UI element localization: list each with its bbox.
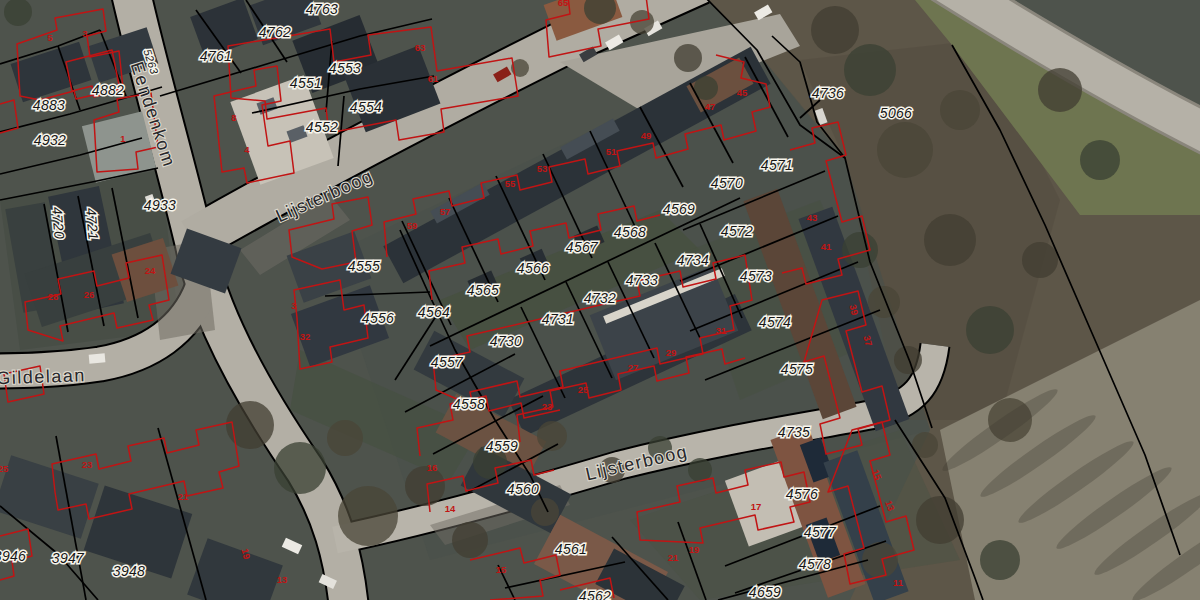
house-number-label: 5 (47, 32, 53, 43)
tree-canopy (1038, 68, 1082, 112)
parcel-number-label: 4736 (812, 85, 844, 101)
house-number-label: 1 (120, 133, 126, 144)
parcel-number-label: 5066 (880, 105, 912, 121)
house-number-label: 61 (428, 73, 439, 84)
tree-canopy (531, 498, 559, 526)
house-number-label: 16 (427, 462, 438, 473)
parcel-number-label: 4720 (49, 206, 68, 240)
tree-canopy (844, 44, 896, 96)
parcel-number-label: 4572 (721, 223, 753, 239)
parcel-number-label: 4733 (626, 272, 658, 288)
parcel-number-label: 4553 (329, 60, 361, 76)
tree-canopy (940, 90, 980, 130)
map-viewport[interactable]: EendenkomLijsterboogLijsterboogGildelaan… (0, 0, 1200, 600)
house-number-label: 43 (807, 212, 818, 223)
house-number-label: 55 (505, 178, 516, 189)
house-number-label: 51 (606, 146, 617, 157)
tree-canopy (842, 232, 878, 268)
street-name-label: Gildelaan (0, 365, 86, 388)
tree-canopy (966, 306, 1014, 354)
parcel-number-label: 3946 (0, 548, 26, 564)
house-number-label: 27 (628, 362, 639, 373)
tree-canopy (980, 540, 1020, 580)
house-number-label: 4 (244, 144, 250, 155)
house-number-label: 13 (277, 574, 288, 585)
house-number-label: 3 (82, 28, 87, 39)
house-number-label: 29 (666, 347, 677, 358)
parcel-number-label: 4578 (799, 556, 831, 572)
tree-canopy (338, 486, 398, 546)
house-number-label: 57 (440, 206, 451, 217)
parcel-number-label: 4559 (486, 438, 518, 454)
house-number-label: 11 (893, 577, 904, 588)
parcel-number-label: 4564 (418, 304, 450, 320)
parcel-number-label: 4932 (34, 132, 66, 148)
house-number-label: 63 (415, 42, 426, 53)
parcel-number-label: 4576 (786, 486, 818, 502)
tree-canopy (1080, 140, 1120, 180)
house-number-label: 31 (716, 325, 727, 336)
parcel-number-label: 4883 (33, 97, 65, 113)
house-number-label: 19 (689, 544, 700, 555)
house-number-label: 47 (705, 101, 716, 112)
parcel-number-label: 4554 (350, 99, 382, 115)
parcel-number-label: 4555 (348, 258, 380, 274)
tree-canopy (405, 466, 445, 506)
house-number-label: 8 (231, 112, 236, 123)
house-number-label: 49 (641, 130, 652, 141)
parcel-number-label: 4567 (566, 239, 599, 255)
parcel-number-label: 4557 (431, 354, 464, 370)
house-number-label: 41 (821, 241, 832, 252)
parcel-number-label: 4730 (490, 333, 522, 349)
house-number-label: 25 (578, 384, 589, 395)
parcel-number-label: 4933 (144, 197, 176, 213)
parcel-number-label: 4659 (749, 584, 781, 600)
parcel-number-label: 4573 (740, 268, 772, 284)
house-number-label: 17 (751, 501, 762, 512)
parcel-number-label: 4556 (362, 310, 394, 326)
map-canvas[interactable]: EendenkomLijsterboogLijsterboogGildelaan… (0, 0, 1200, 600)
parcel-number-label: 4761 (200, 48, 232, 64)
house-number-label: 21 (178, 491, 189, 502)
house-number-label: 24 (145, 265, 156, 276)
tree-canopy (811, 6, 859, 54)
parcel-number-label: 4558 (453, 396, 485, 412)
tree-canopy (877, 122, 933, 178)
parcel-number-label: 4560 (507, 481, 539, 497)
tree-canopy (1022, 242, 1058, 278)
tree-canopy (452, 522, 488, 558)
house-number-label: 59 (407, 220, 418, 231)
parcel-number-label: 4561 (555, 541, 587, 557)
parcel-number-label: 3947 (52, 550, 85, 566)
house-number-label: 28 (48, 291, 59, 302)
parcel-number-label: 4568 (614, 224, 646, 240)
parcel-number-label: 4734 (677, 252, 709, 268)
parcel-number-label: 4762 (259, 24, 291, 40)
house-number-label: 23 (542, 401, 553, 412)
parcel-number-label: 4571 (761, 157, 793, 173)
parcel-number-label: 4562 (579, 588, 611, 600)
parcel-number-label: 4566 (517, 260, 549, 276)
house-number-label: 15 (496, 564, 507, 575)
tree-canopy (327, 420, 363, 456)
house-number-label: 23 (82, 459, 93, 470)
tree-canopy (924, 214, 976, 266)
parcel-number-label: 4882 (92, 82, 124, 98)
parcel-number-label: 4731 (542, 311, 574, 327)
tree-canopy (274, 442, 326, 494)
parcel-number-label: 4735 (778, 424, 810, 440)
house-number-label: 25 (0, 463, 9, 474)
house-number-label: 32 (300, 331, 311, 342)
parcel-number-label: 4552 (306, 119, 338, 135)
parcel-number-label: 4570 (711, 175, 743, 191)
parcel-number-label: 4721 (83, 207, 102, 241)
parcel-number-label: 4574 (759, 314, 791, 330)
parcel-number-label: 4565 (467, 282, 499, 298)
house-number-label: 53 (537, 163, 548, 174)
tree-canopy (674, 44, 702, 72)
parcel-number-label: 3948 (113, 563, 145, 579)
house-number-label: 65 (558, 0, 569, 8)
parcel-number-label: 4575 (781, 361, 813, 377)
parcel-number-label: 4551 (290, 75, 322, 91)
house-number-label: 21 (668, 552, 679, 563)
parcel-number-label: 4763 (306, 1, 338, 17)
house-number-label: 26 (84, 289, 95, 300)
parcel-number-label: 4732 (584, 290, 616, 306)
house-number-label: 14 (445, 503, 456, 514)
tree-canopy (916, 496, 964, 544)
house-number-label: 3 (291, 300, 296, 311)
tree-canopy (894, 346, 922, 374)
parcel-number-label: 4569 (663, 201, 695, 217)
house-number-label: 45 (737, 87, 748, 98)
parcel-number-label: 4577 (804, 524, 837, 540)
